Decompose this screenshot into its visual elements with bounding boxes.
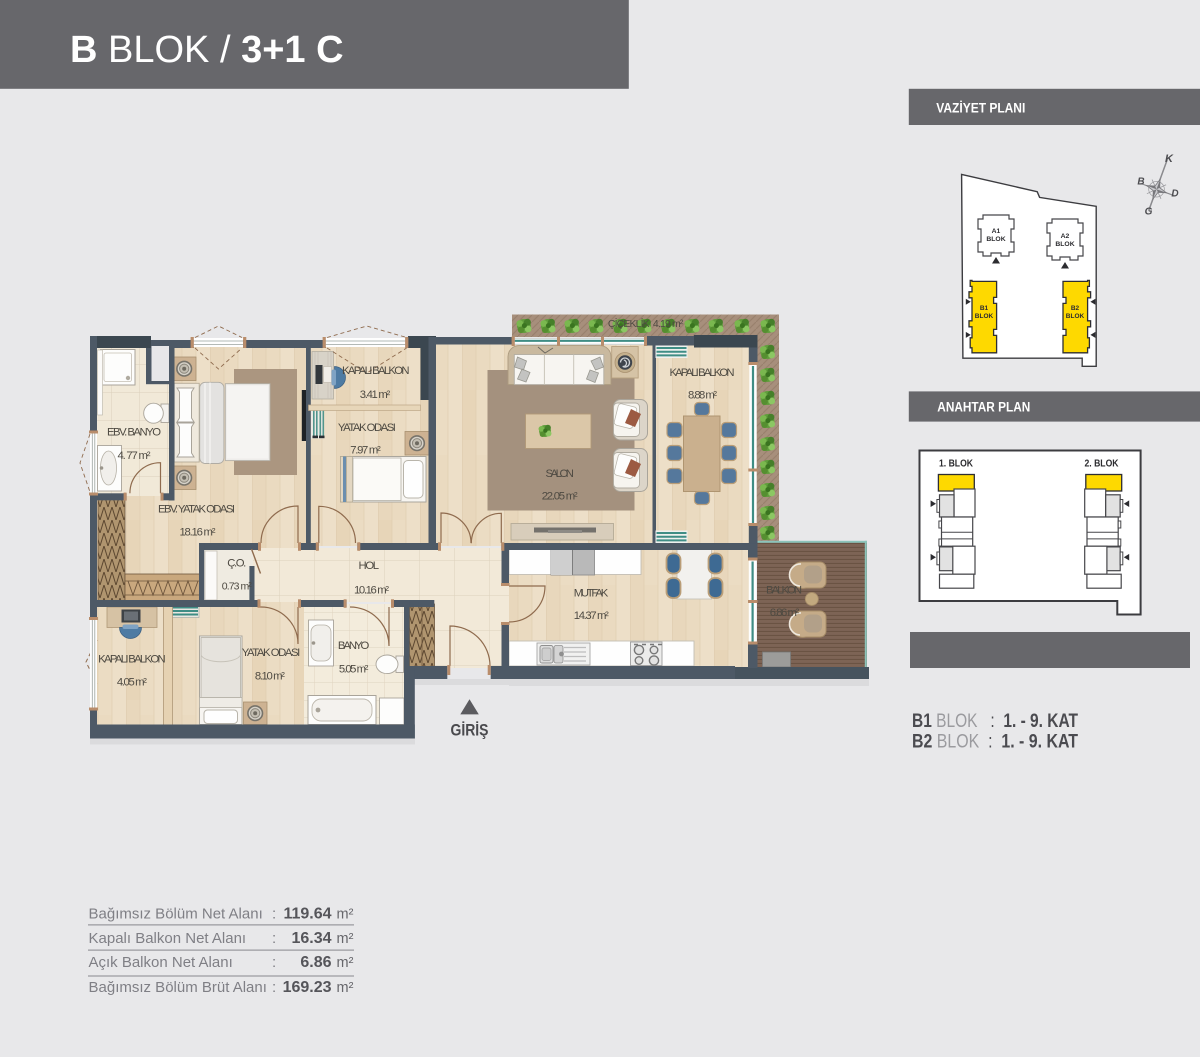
- svg-text:A2: A2: [1061, 233, 1070, 240]
- svg-text:B1 BLOK : 1. - 9. KAT: B1 BLOK : 1. - 9. KAT: [912, 710, 1078, 732]
- svg-text:m²: m²: [337, 980, 354, 996]
- svg-text:4. 77 m²: 4. 77 m²: [118, 450, 151, 462]
- svg-text:B BLOK / 3+1 C: B BLOK / 3+1 C: [70, 29, 344, 71]
- svg-text:GİRİŞ: GİRİŞ: [451, 722, 489, 740]
- svg-text:3.41 m²: 3.41 m²: [360, 389, 391, 401]
- svg-text:169.23: 169.23: [283, 979, 332, 996]
- svg-text:BLOK: BLOK: [1055, 241, 1074, 248]
- svg-text:A1: A1: [992, 228, 1001, 235]
- svg-text:BLOK: BLOK: [986, 236, 1005, 243]
- svg-text:D: D: [1171, 189, 1178, 200]
- svg-text:18.16 m²: 18.16 m²: [180, 527, 216, 539]
- svg-text:K: K: [1165, 153, 1174, 165]
- svg-text:8.88 m²: 8.88 m²: [688, 390, 717, 402]
- svg-text:KAPALI BALKON: KAPALI BALKON: [98, 654, 166, 666]
- svg-text:Ç.O.: Ç.O.: [227, 558, 246, 570]
- svg-text:Bağımsız Bölüm Brüt Alanı: Bağımsız Bölüm Brüt Alanı: [89, 979, 267, 996]
- svg-text:Bağımsız Bölüm Net Alanı: Bağımsız Bölüm Net Alanı: [89, 906, 263, 923]
- svg-text:YATAK ODASI: YATAK ODASI: [242, 647, 301, 659]
- svg-text:1. BLOK: 1. BLOK: [939, 458, 973, 470]
- svg-text:B2 BLOK : 1. - 9. KAT: B2 BLOK : 1. - 9. KAT: [912, 731, 1078, 753]
- svg-text:VAZİYET PLANI: VAZİYET PLANI: [936, 101, 1025, 116]
- svg-text:BALKON: BALKON: [766, 585, 802, 597]
- svg-text:ANAHTAR PLAN: ANAHTAR PLAN: [937, 400, 1030, 415]
- svg-text:MUTFAK: MUTFAK: [574, 588, 609, 600]
- svg-text:Kapalı Balkon Net Alanı: Kapalı Balkon Net Alanı: [89, 930, 247, 947]
- svg-text:5.05 m²: 5.05 m²: [339, 664, 369, 676]
- svg-text:8.10 m²: 8.10 m²: [255, 671, 285, 683]
- svg-text::: :: [272, 979, 276, 996]
- svg-text:119.64: 119.64: [283, 906, 331, 923]
- svg-text:EBV. YATAK ODASI: EBV. YATAK ODASI: [158, 504, 235, 516]
- svg-text:G: G: [1145, 207, 1153, 218]
- svg-text:HOL: HOL: [359, 560, 380, 572]
- svg-text:m²: m²: [337, 907, 354, 923]
- svg-text:EBV. BANYO: EBV. BANYO: [107, 427, 161, 439]
- svg-text:B: B: [1137, 177, 1144, 188]
- svg-text:14.37 m²: 14.37 m²: [574, 610, 609, 622]
- svg-text:BLOK: BLOK: [1066, 313, 1085, 320]
- svg-text:m²: m²: [337, 955, 354, 971]
- svg-text:SALON: SALON: [545, 468, 574, 480]
- svg-text:BLOK: BLOK: [975, 313, 994, 320]
- svg-text:22.05 m²: 22.05 m²: [542, 491, 578, 503]
- svg-text:6.86: 6.86: [300, 954, 331, 971]
- svg-text::: :: [272, 906, 276, 923]
- svg-text:BANYO: BANYO: [338, 640, 370, 652]
- svg-text:Açık Balkon Net Alanı: Açık Balkon Net Alanı: [89, 954, 233, 971]
- svg-text:10.16 m²: 10.16 m²: [354, 585, 389, 597]
- svg-text:4.05 m²: 4.05 m²: [117, 677, 147, 689]
- svg-text:ÇİÇEKLİK 4.19 m²: ÇİÇEKLİK 4.19 m²: [608, 317, 684, 330]
- svg-text:KAPALI BALKON: KAPALI BALKON: [670, 367, 735, 379]
- svg-text:YATAK ODASI: YATAK ODASI: [338, 422, 396, 434]
- svg-text:2. BLOK: 2. BLOK: [1085, 458, 1119, 470]
- svg-text:m²: m²: [337, 931, 354, 947]
- svg-text:16.34: 16.34: [291, 930, 331, 947]
- svg-text:7.97 m²: 7.97 m²: [350, 445, 381, 457]
- svg-text::: :: [272, 954, 276, 971]
- svg-text:B2: B2: [1071, 305, 1080, 312]
- svg-text:B1: B1: [980, 305, 989, 312]
- svg-text:0.73 m²: 0.73 m²: [222, 581, 252, 593]
- svg-text:KAPALI BALKON: KAPALI BALKON: [342, 365, 410, 377]
- svg-text::: :: [272, 930, 276, 947]
- svg-text:6.86 m²: 6.86 m²: [770, 607, 800, 619]
